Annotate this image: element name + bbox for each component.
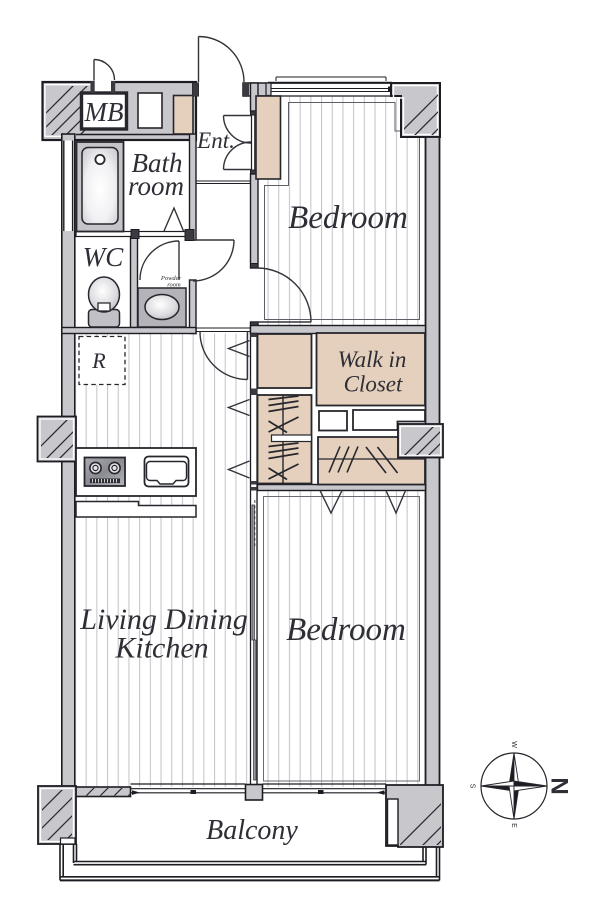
svg-text:WC: WC (83, 242, 124, 272)
svg-text:Balcony: Balcony (206, 815, 298, 846)
svg-text:R: R (91, 348, 106, 373)
svg-text:S: S (469, 784, 476, 789)
svg-text:Closet: Closet (344, 372, 403, 397)
svg-text:room: room (128, 171, 184, 201)
svg-text:room: room (167, 282, 181, 289)
svg-text:E: E (510, 823, 517, 828)
svg-text:Kitchen: Kitchen (114, 632, 208, 665)
svg-text:Bedroom: Bedroom (288, 200, 408, 236)
svg-text:N: N (546, 777, 573, 794)
svg-text:W: W (510, 741, 517, 748)
svg-text:Ent.: Ent. (196, 128, 235, 153)
svg-text:MB: MB (84, 97, 124, 127)
svg-text:Walk in: Walk in (338, 347, 407, 372)
svg-text:Bedroom: Bedroom (286, 612, 406, 648)
